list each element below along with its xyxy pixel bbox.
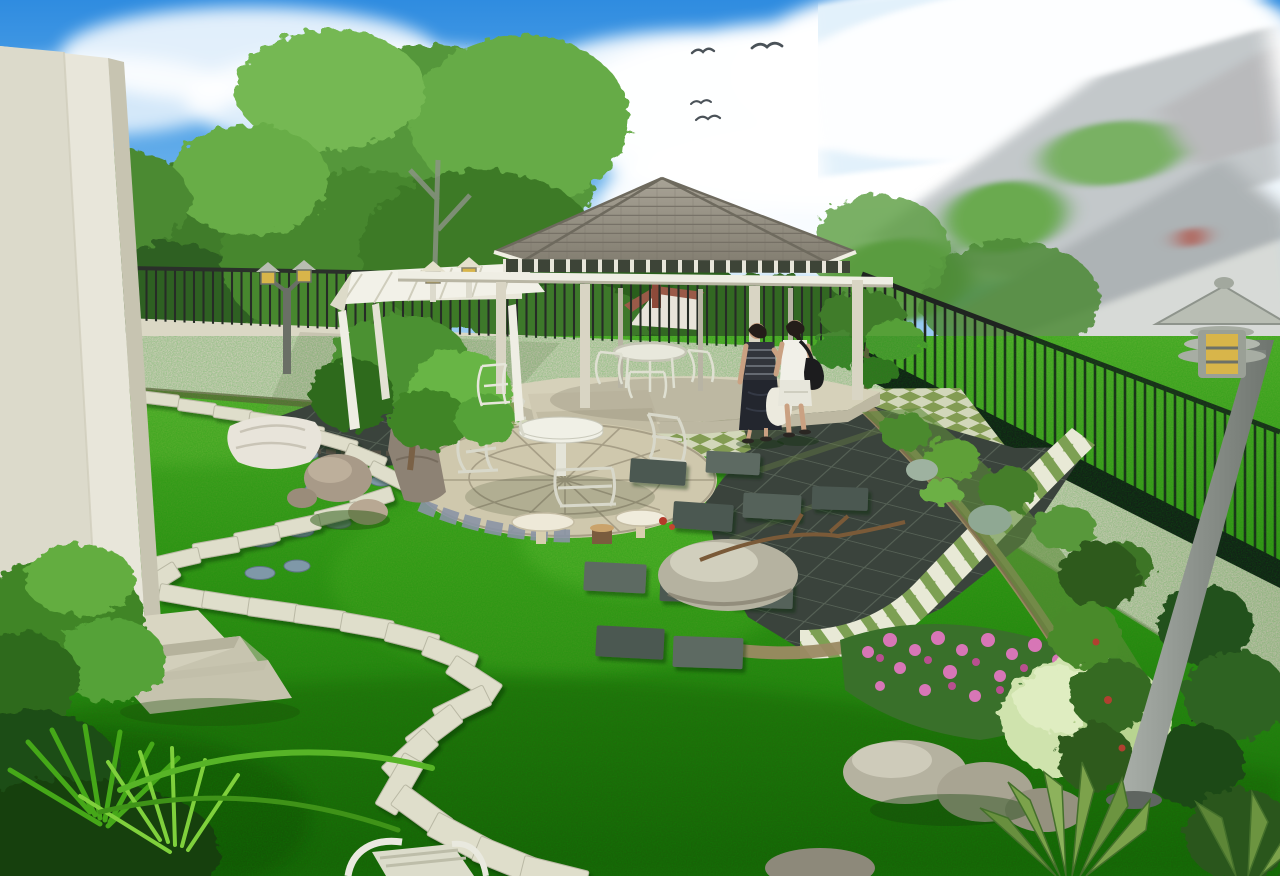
mushroom-cap	[512, 513, 574, 531]
mushroom-cap	[616, 510, 666, 526]
garden-render	[0, 0, 1280, 876]
gazebo-clerestory	[503, 259, 850, 273]
